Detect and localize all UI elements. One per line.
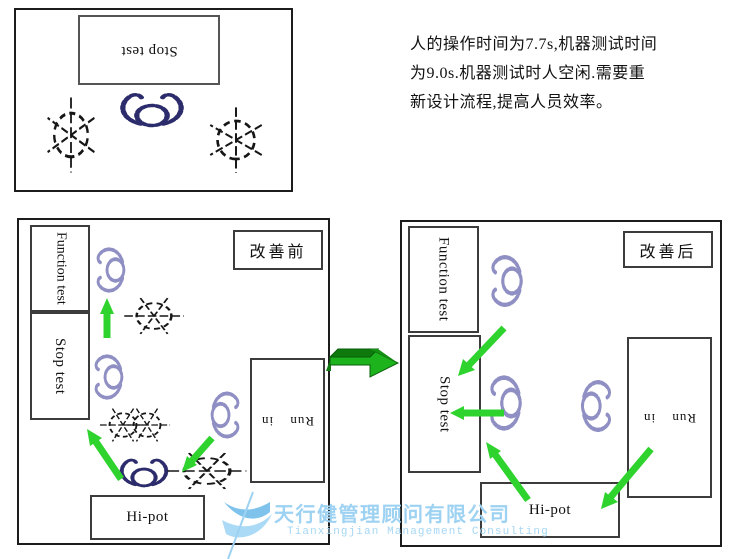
operator-icon	[114, 84, 190, 134]
analysis-note: 人的操作时间为7.7s,机器测试时间 为9.0s.机器测试时人空闲.需要重 新设…	[410, 30, 740, 117]
operator-icon	[87, 350, 129, 404]
before-run-in-box: Run in	[250, 358, 325, 483]
after-hi-pot-label: Hi-pot	[529, 502, 571, 519]
before-title: 改善前	[249, 238, 306, 262]
machine-wheel-icon	[123, 404, 171, 446]
flow-arrow-icon	[97, 296, 117, 340]
improvement-arrow-icon	[326, 340, 402, 378]
flow-arrow-icon	[446, 403, 508, 423]
after-run-in-label: Run in	[643, 410, 696, 426]
machine-wheel-icon	[203, 106, 269, 174]
flow-arrow-icon	[452, 322, 510, 384]
operator-icon	[89, 243, 131, 297]
before-hi-pot-box: Hi-pot	[90, 495, 205, 540]
before-function-test-box: Function test	[30, 225, 90, 312]
before-run-in-label: Run in	[261, 413, 314, 429]
after-title: 改善后	[639, 238, 696, 262]
intro-stop-test-box: Stop test	[78, 15, 220, 85]
machine-wheel-icon	[41, 96, 101, 174]
flow-arrow-icon	[81, 423, 125, 483]
flow-arrow-icon	[480, 434, 534, 506]
before-function-test-label: Function test	[51, 232, 70, 305]
before-stop-test-box: Stop test	[30, 312, 90, 420]
after-function-test-label: Function test	[433, 237, 453, 321]
before-stop-test-label: Stop test	[50, 338, 70, 395]
operator-icon	[575, 375, 619, 437]
operator-icon	[483, 250, 529, 312]
before-hi-pot-label: Hi-pot	[126, 509, 168, 526]
before-title-box: 改善前	[233, 230, 323, 270]
after-function-test-box: Function test	[408, 226, 479, 333]
flow-arrow-icon	[176, 430, 218, 480]
intro-stop-test-label: Stop test	[121, 42, 178, 59]
machine-wheel-icon	[123, 293, 185, 339]
flow-arrow-icon	[595, 443, 657, 517]
document-page: Stop test 人的操作时间为7.7s,机器测试时间 为9.0s.机器测试时…	[0, 0, 744, 559]
after-title-box: 改善后	[623, 231, 713, 268]
